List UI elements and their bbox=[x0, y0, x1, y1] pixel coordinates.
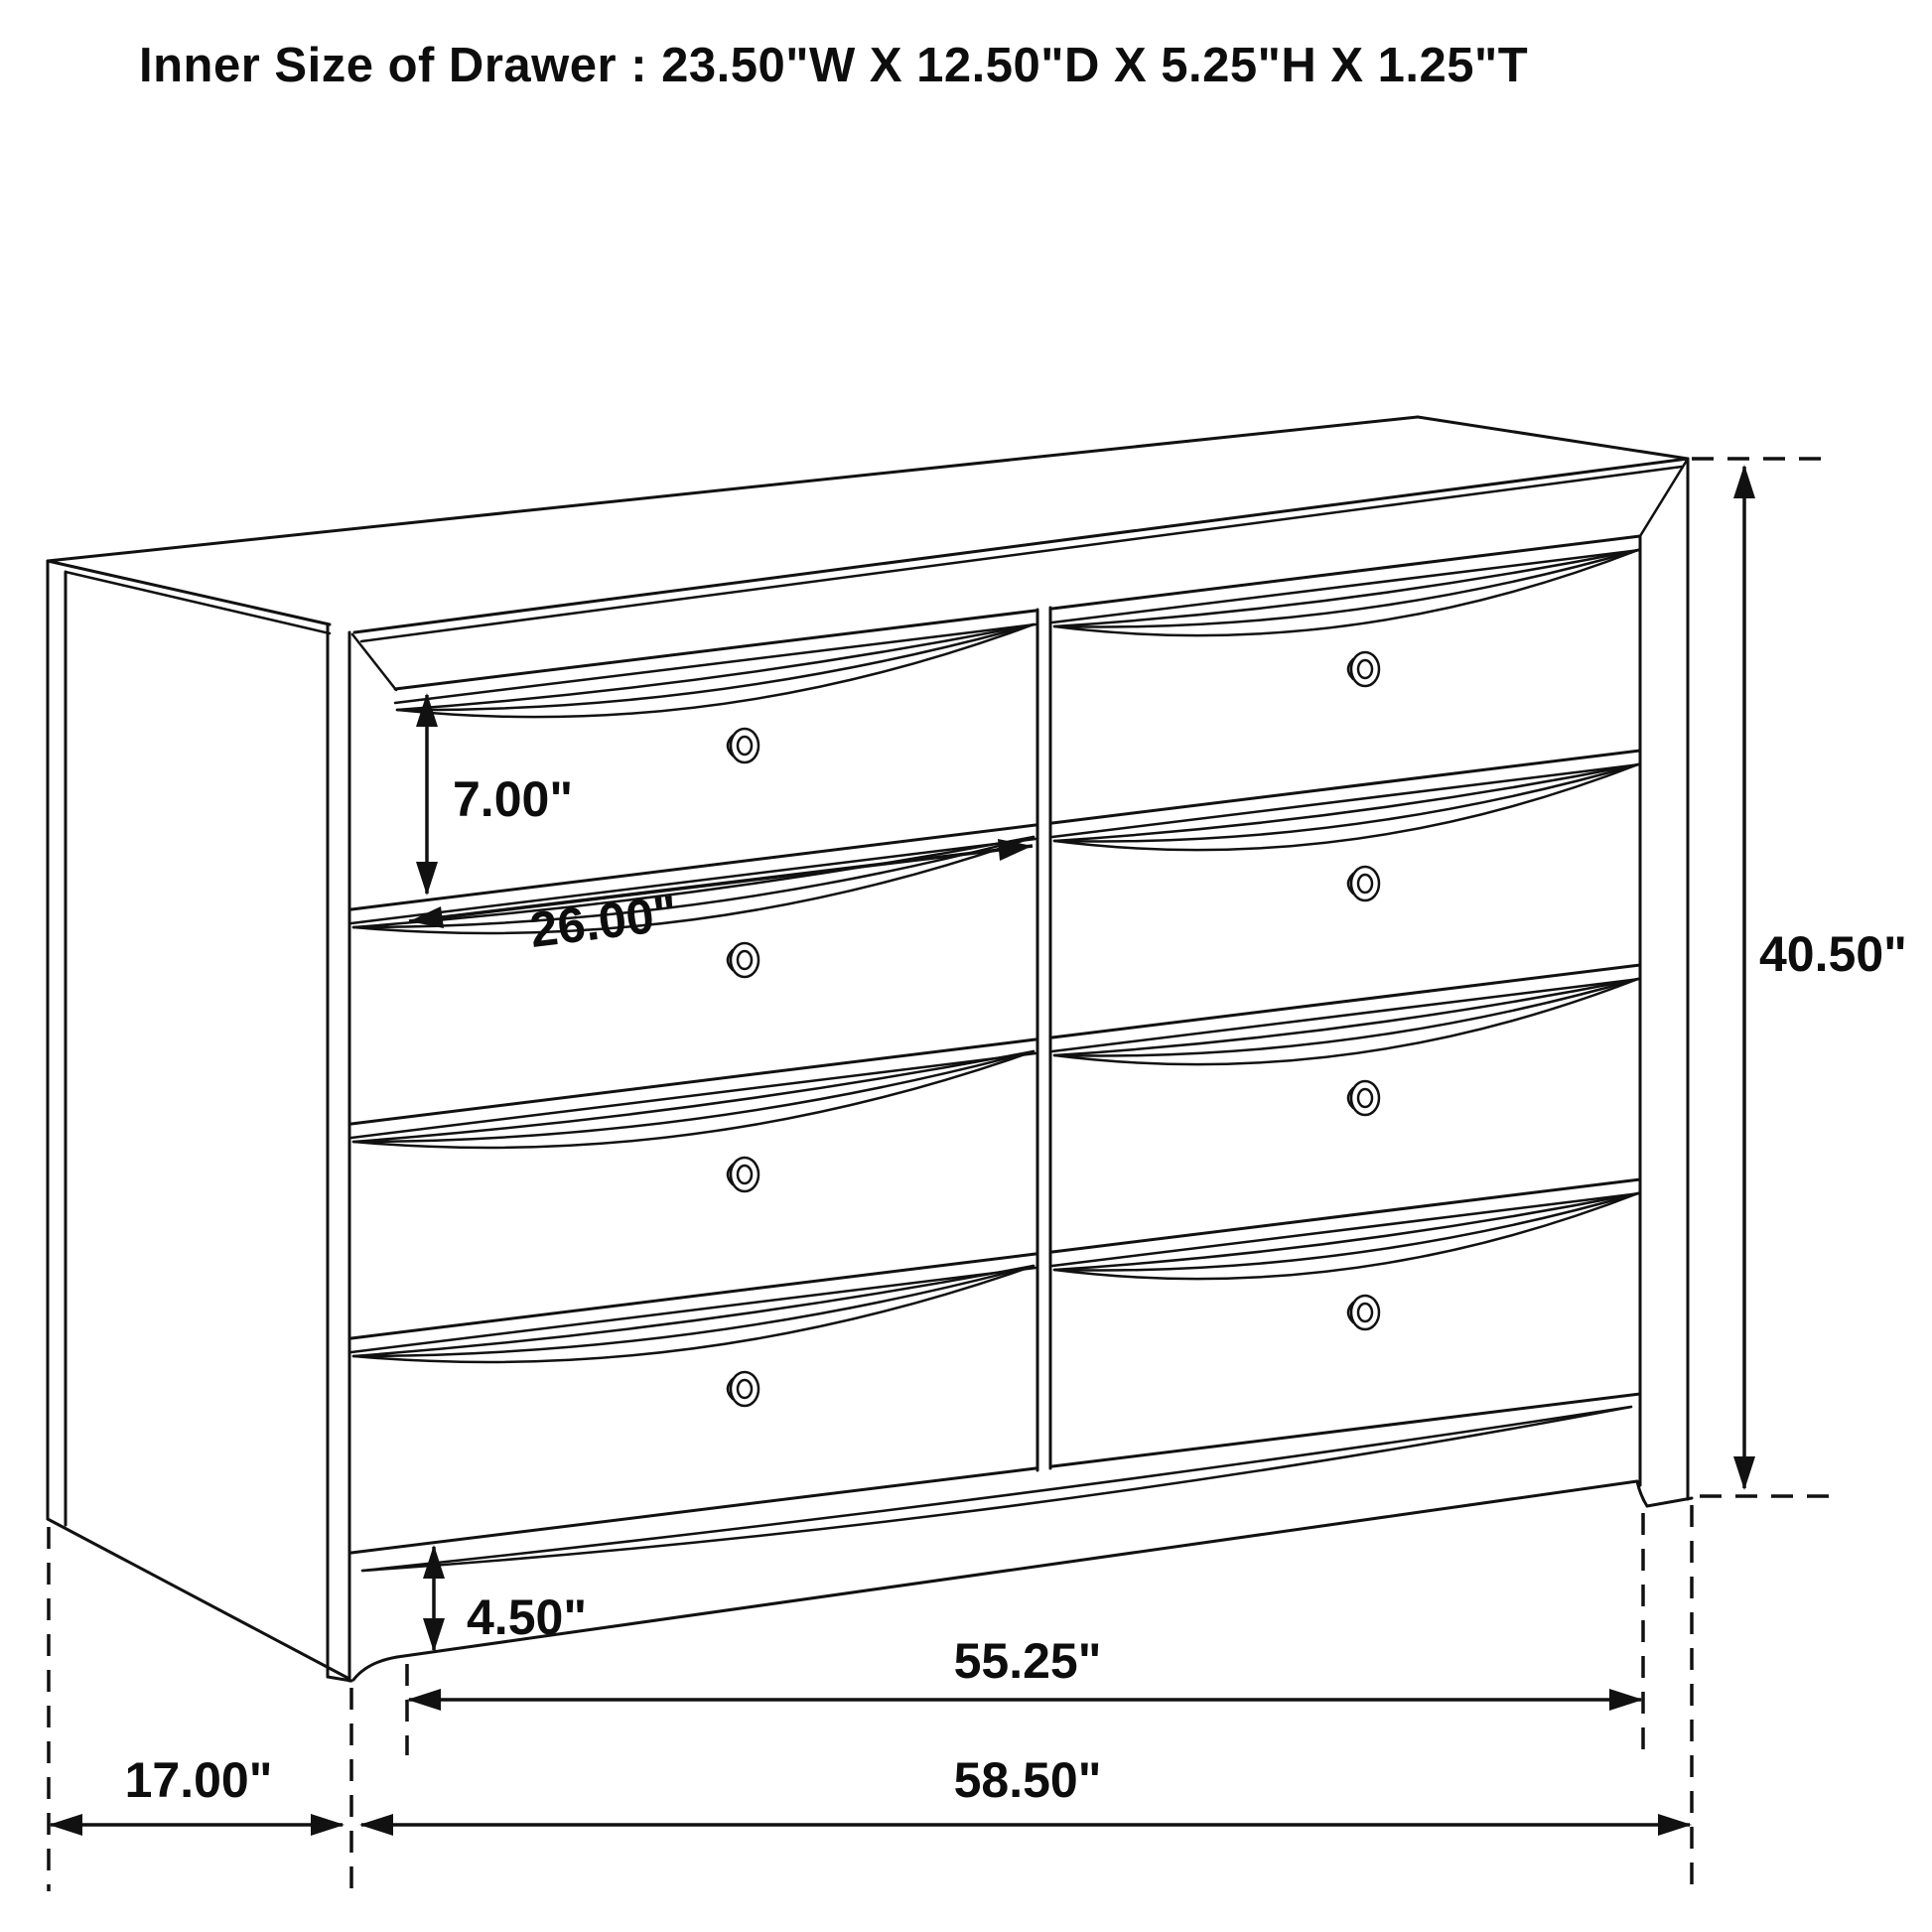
front-right-stile bbox=[1637, 459, 1692, 1506]
side-panel bbox=[48, 561, 349, 1679]
dim-label-drawer-width: 26.00" bbox=[527, 885, 681, 958]
diagram-page: Inner Size of Drawer : 23.50"W X 12.50"D… bbox=[0, 0, 1932, 1932]
knob bbox=[728, 1158, 759, 1191]
dim-label-leg-height: 4.50" bbox=[467, 1589, 587, 1645]
dim-label-side-depth: 17.00" bbox=[125, 1752, 273, 1808]
dim-label-overall-height: 40.50" bbox=[1759, 926, 1907, 982]
knob bbox=[1348, 867, 1379, 900]
dim-label-drawer-face-height: 7.00" bbox=[453, 771, 573, 827]
drawer-gap-lines bbox=[351, 536, 1640, 1553]
knob bbox=[728, 943, 759, 977]
dresser-outline bbox=[48, 417, 1692, 1681]
knob bbox=[728, 729, 759, 762]
dim-width-between-legs: 55.25" bbox=[407, 1513, 1643, 1755]
dim-overall-height: 40.50" bbox=[1692, 459, 1907, 1496]
dim-label-width-between-legs: 55.25" bbox=[954, 1633, 1102, 1689]
center-divider bbox=[1037, 608, 1050, 1470]
top-surface bbox=[48, 417, 1688, 690]
dresser-dimension-diagram: 7.00" 26.00" 40.50" bbox=[0, 0, 1932, 1932]
knob bbox=[1348, 1296, 1379, 1329]
dim-drawer-width: 26.00" bbox=[409, 839, 1033, 958]
dim-label-overall-width: 58.50" bbox=[954, 1752, 1102, 1808]
knob bbox=[1348, 1081, 1379, 1115]
dim-drawer-face-height: 7.00" bbox=[416, 693, 573, 896]
knob bbox=[728, 1372, 759, 1406]
knob bbox=[1348, 652, 1379, 686]
dim-side-depth: 17.00" bbox=[49, 1527, 351, 1891]
front-left-stile bbox=[328, 624, 397, 1681]
